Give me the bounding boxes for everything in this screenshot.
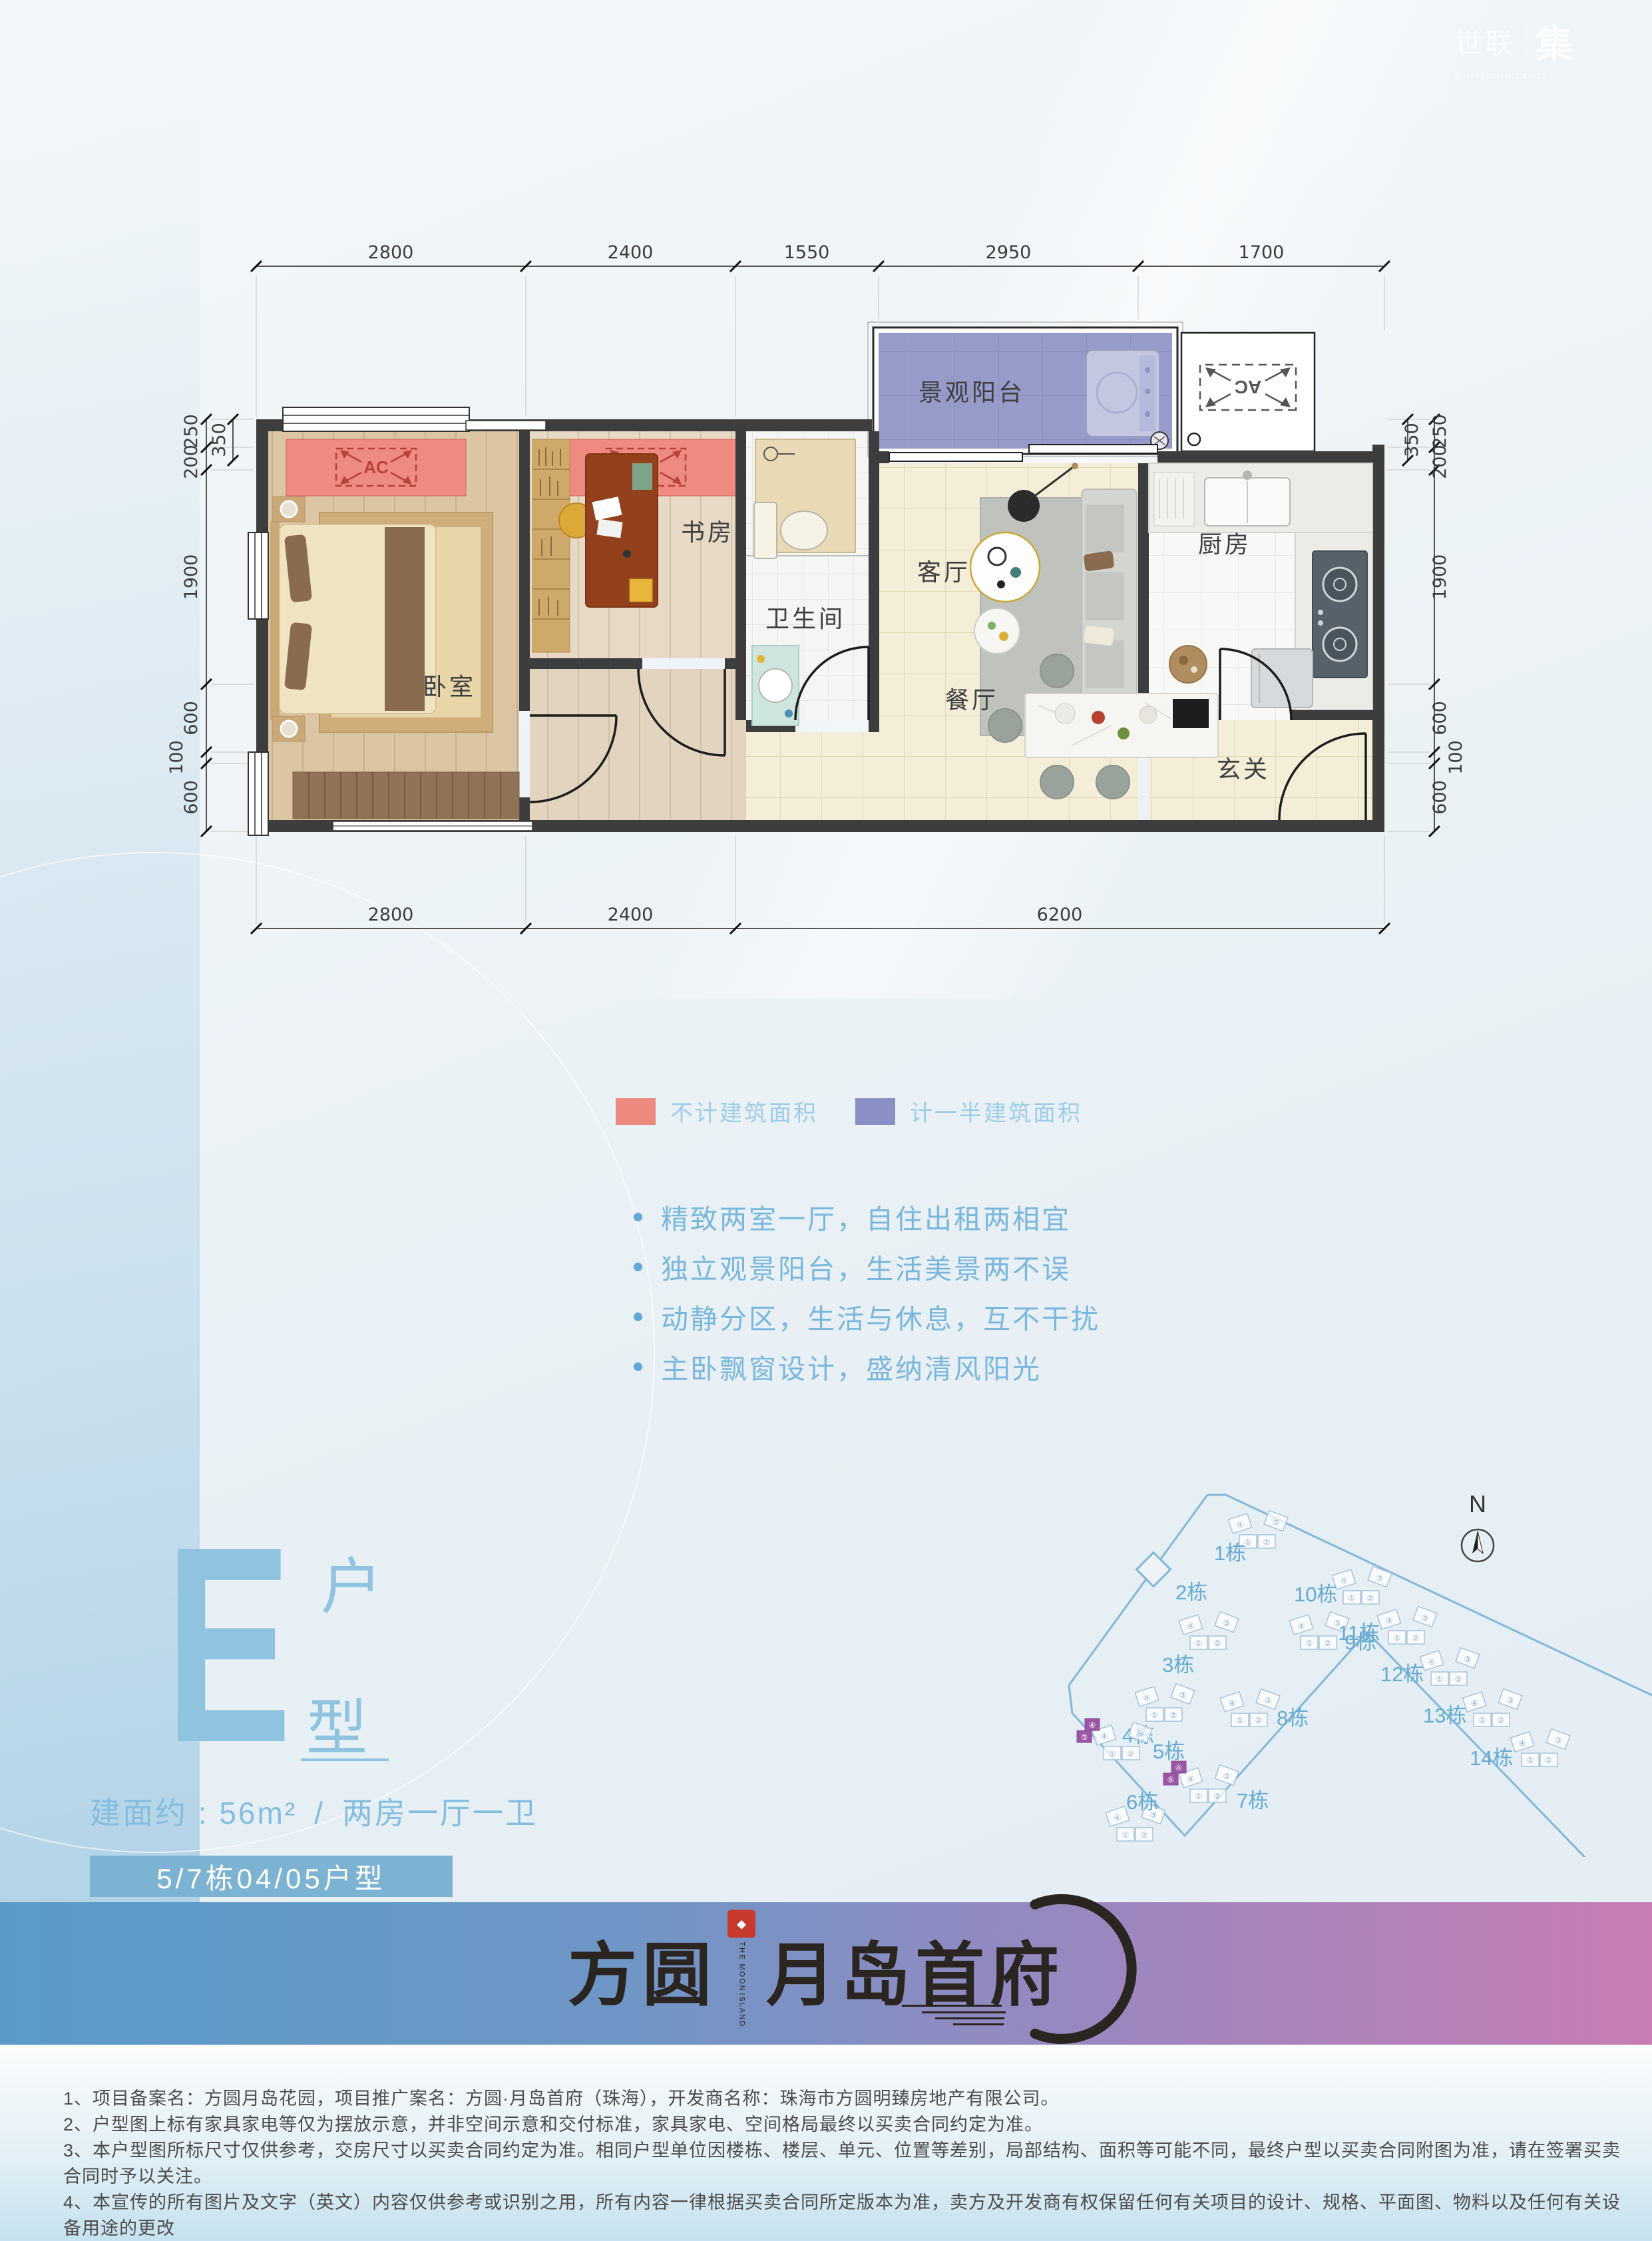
faucet-icon <box>1243 471 1252 480</box>
svg-text:②: ② <box>1170 1711 1177 1720</box>
svg-text:④: ④ <box>1101 1732 1108 1741</box>
unit-separator: / <box>314 1795 325 1831</box>
svg-text:②: ② <box>1128 1749 1135 1758</box>
desk-lamp <box>630 579 652 602</box>
svg-text:③: ③ <box>1223 1619 1231 1628</box>
label-kitchen: 厨房 <box>1198 530 1251 558</box>
svg-text:②: ② <box>1214 1792 1221 1801</box>
bullet-dot-icon <box>634 1362 642 1371</box>
site-building-8栋: ④③①②8栋 <box>1220 1689 1309 1730</box>
balcony <box>868 322 1183 457</box>
floorplan: 2800 2400 1550 2950 1700 2800 2400 6200 … <box>120 220 1584 972</box>
svg-text:④: ④ <box>1519 1738 1526 1748</box>
toilet-tank <box>754 503 777 558</box>
logo-speedline <box>922 2011 1006 2013</box>
bed-headboard <box>270 520 280 720</box>
svg-text:④: ④ <box>1114 1813 1122 1822</box>
site-building-label: 11栋 <box>1338 1621 1380 1645</box>
svg-text:②: ② <box>1498 1716 1505 1725</box>
svg-text:③: ③ <box>1376 1573 1384 1583</box>
logo-name-left: 方圆 <box>568 1918 717 2019</box>
dining-chair <box>1040 765 1074 799</box>
svg-text:④: ④ <box>1237 1520 1244 1529</box>
dim-top-1: 2800 <box>368 242 414 263</box>
watermark-suffix: 集 <box>1535 13 1573 69</box>
svg-text:②: ② <box>1325 1639 1332 1648</box>
logo-sub-line1: THE MOON <box>737 1941 745 1991</box>
svg-text:③: ③ <box>1555 1736 1562 1745</box>
fridge <box>1251 649 1313 708</box>
svg-text:⑤: ⑤ <box>1167 1775 1175 1784</box>
burner-1 <box>1323 568 1356 601</box>
unit-type-underline <box>301 1758 389 1761</box>
round-tray-table <box>1169 646 1207 683</box>
svg-text:②: ② <box>1412 1633 1420 1643</box>
label-balcony: 景观阳台 <box>919 379 1025 406</box>
feature-text: 精致两室一厅，自住出租两相宜 <box>661 1197 1071 1237</box>
svg-text:①: ① <box>1151 1711 1159 1720</box>
svg-text:②: ② <box>1141 1830 1148 1840</box>
dim-bottom-2: 2400 <box>608 905 654 925</box>
label-bathroom: 卫生间 <box>765 605 845 632</box>
site-building-11栋: ④③①②11栋 <box>1338 1607 1437 1645</box>
site-building-13栋: ④③①②13栋 <box>1423 1689 1522 1727</box>
dim-left-3: 1900 <box>181 554 202 600</box>
svg-text:④: ④ <box>1187 1774 1195 1784</box>
unit-area-text: 建面约 : 56m² <box>90 1789 297 1833</box>
svg-text:②: ② <box>1455 1675 1462 1684</box>
poster-canvas: 世联 集 worldunion.com <box>0 0 1652 2241</box>
coffee-table <box>970 532 1040 602</box>
dim-right-2: 200 <box>1430 445 1450 479</box>
footer: 1、项目备案名：方圆月岛花园，项目推广案名：方圆·月岛首府（珠海），开发商名称：… <box>0 2045 1652 2241</box>
site-building-label: 2栋 <box>1175 1581 1207 1604</box>
feature-text: 动静分区，生活与休息，互不干扰 <box>661 1297 1100 1336</box>
site-building-14栋: ④③①②14栋 <box>1470 1729 1570 1770</box>
unit-type-char-top: 户 <box>321 1537 382 1626</box>
sink-basin <box>759 669 792 702</box>
svg-text:③: ③ <box>1422 1613 1429 1623</box>
unit-badge: 5/7栋04/05户型 <box>90 1856 453 1897</box>
site-building-12栋: ④③①②12栋 <box>1380 1648 1480 1686</box>
bullet-dot-icon <box>634 1313 642 1321</box>
dining-chair <box>988 709 1022 742</box>
svg-text:①: ① <box>1195 1639 1203 1648</box>
ac-text-1: AC <box>363 457 389 477</box>
dim-right-4: 600 <box>1430 701 1450 735</box>
svg-text:①: ① <box>1195 1792 1203 1801</box>
brand-banner: 方圆 ◆ THE MOON ISLAND 月岛首府 <box>0 1902 1652 2045</box>
svg-text:①: ① <box>1122 1830 1130 1840</box>
svg-text:④: ④ <box>1089 1721 1096 1730</box>
watermark: 世联 集 worldunion.com <box>1454 13 1573 83</box>
site-building-label: 10栋 <box>1294 1583 1337 1606</box>
sofa-pillow-2 <box>1084 625 1115 646</box>
dim-left-2: 200 <box>181 445 202 479</box>
site-building-label: 8栋 <box>1277 1707 1309 1730</box>
svg-text:⑤: ⑤ <box>1081 1732 1088 1742</box>
site-building-label: 5栋 <box>1153 1740 1185 1763</box>
logo-speedline <box>953 2023 1004 2025</box>
svg-text:③: ③ <box>1273 1518 1280 1527</box>
site-building-label: 14栋 <box>1470 1746 1513 1770</box>
dim-bottom-3: 6200 <box>1037 905 1083 925</box>
feature-item: 独立观景阳台，生活美景两不误 <box>634 1247 1071 1287</box>
legend-swatch-red <box>616 1098 656 1125</box>
label-study: 书房 <box>681 518 734 546</box>
left-bay-window-1 <box>248 532 268 619</box>
unit-layout-text: 两房一厅一卫 <box>342 1789 538 1833</box>
site-building-label: 12栋 <box>1380 1663 1424 1686</box>
dim-top-2: 2400 <box>608 242 654 263</box>
site-building-1栋: ④③①②1栋 <box>1214 1511 1288 1565</box>
svg-text:①: ① <box>1306 1639 1313 1648</box>
svg-text:①: ① <box>1479 1716 1486 1725</box>
site-building-3栋: ④③①②3栋 <box>1162 1612 1239 1677</box>
logo-mid: ◆ THE MOON ISLAND <box>727 1910 755 2027</box>
brand-logo: 方圆 ◆ THE MOON ISLAND 月岛首府 <box>568 1910 1084 2027</box>
dim-top-4: 2950 <box>986 242 1032 263</box>
dim-right-inner: 350 <box>1402 423 1422 457</box>
svg-text:①: ① <box>1436 1675 1444 1684</box>
wardrobe <box>293 772 519 819</box>
svg-text:②: ② <box>1546 1756 1553 1765</box>
svg-text:④: ④ <box>1175 1763 1183 1772</box>
legend-item-half-area: 计一半建筑面积 <box>855 1095 1082 1127</box>
bed-runner <box>385 527 425 711</box>
legend-item-no-area: 不计建筑面积 <box>616 1095 818 1127</box>
svg-text:③: ③ <box>1507 1696 1514 1705</box>
disclaimer-line: 2、户型图上标有家具家电等仅为摆放示意，并非空间示意和交付标准，家具家电、空间格… <box>63 2112 1621 2138</box>
dim-right-5: 100 <box>1446 740 1466 775</box>
dim-left-4: 600 <box>181 701 202 735</box>
svg-text:②: ② <box>1214 1639 1221 1648</box>
svg-text:②: ② <box>1255 1716 1263 1725</box>
hallway-floor <box>530 669 746 820</box>
compass-north-label: N <box>1469 1490 1486 1518</box>
ac-text-outdoor: AC <box>1235 377 1261 397</box>
site-building-label: 13栋 <box>1423 1704 1466 1727</box>
feature-item: 动静分区，生活与休息，互不干扰 <box>634 1297 1100 1336</box>
left-bay-window-2 <box>248 752 268 835</box>
dim-left-5: 100 <box>166 740 187 775</box>
dim-right-1: 250 <box>1430 414 1450 449</box>
bullet-dot-icon <box>634 1213 642 1221</box>
disclaimer: 1、项目备案名：方圆月岛花园，项目推广案名：方圆·月岛首府（珠海），开发商名称：… <box>63 2086 1621 2241</box>
corridor-tile <box>746 732 879 820</box>
site-building-6栋: ④③①②6栋 <box>1106 1790 1165 1841</box>
dim-right-6: 600 <box>1430 780 1450 815</box>
legend-label: 计一半建筑面积 <box>910 1095 1082 1127</box>
svg-text:②: ② <box>1367 1593 1374 1603</box>
svg-text:①: ① <box>1394 1633 1401 1643</box>
dim-left-inner: 350 <box>209 423 230 457</box>
site-building-label: 3栋 <box>1162 1653 1194 1677</box>
site-building-label: 6栋 <box>1126 1790 1158 1814</box>
svg-text:①: ① <box>1527 1756 1534 1765</box>
label-living: 客厅 <box>917 558 970 586</box>
svg-text:③: ③ <box>1265 1696 1272 1705</box>
disclaimer-line: 1、项目备案名：方圆月岛花园，项目推广案名：方圆·月岛首府（珠海），开发商名称：… <box>63 2086 1621 2112</box>
svg-text:④: ④ <box>1229 1699 1236 1708</box>
compass: N <box>1462 1490 1494 1561</box>
label-bedroom: 卧室 <box>423 673 476 700</box>
logo-sub-line2: ISLAND <box>737 1993 745 2028</box>
svg-text:①: ① <box>1109 1749 1116 1758</box>
unit-type-letter: E <box>165 1506 292 1785</box>
dining-chair <box>1040 654 1074 688</box>
logo-diamond-icon: ◆ <box>727 1910 755 1937</box>
svg-text:④: ④ <box>1298 1621 1305 1631</box>
dim-left-1: 250 <box>181 414 202 449</box>
burner-2 <box>1323 628 1356 661</box>
svg-text:④: ④ <box>1187 1621 1195 1631</box>
svg-text:④: ④ <box>1386 1616 1393 1625</box>
feature-text: 独立观景阳台，生活美景两不误 <box>661 1247 1071 1287</box>
watermark-divider <box>1525 21 1526 61</box>
svg-text:③: ③ <box>1179 1691 1187 1700</box>
feature-item: 主卧飘窗设计，盛纳清风阳光 <box>634 1346 1042 1386</box>
site-building-7栋: ④③①②④⑤7栋 <box>1163 1761 1269 1812</box>
label-entry: 玄关 <box>1217 755 1270 783</box>
legend-swatch-purple <box>855 1098 895 1125</box>
svg-text:③: ③ <box>1464 1655 1472 1664</box>
dim-top-3: 1550 <box>784 242 830 263</box>
table-mat <box>1173 699 1209 728</box>
top-window <box>466 421 546 430</box>
site-building-label: 7栋 <box>1237 1789 1269 1812</box>
svg-text:④: ④ <box>1143 1693 1151 1703</box>
site-notch <box>1137 1553 1171 1587</box>
disclaimer-line: 4、本宣传的所有图片及文字（英文）内容仅供参考或识别之用，所有内容一律根据买卖合… <box>63 2190 1621 2241</box>
svg-text:④: ④ <box>1428 1657 1436 1667</box>
site-plan: N ④③①②1栋2栋④③①②3栋④③①②4栋④③①②④⑤5栋④③①②6栋④③①②… <box>1052 1418 1652 1857</box>
site-building-2栋: 2栋 <box>1175 1581 1207 1604</box>
svg-text:④: ④ <box>1471 1699 1478 1708</box>
dim-right-3: 1900 <box>1430 554 1450 600</box>
dish-rack <box>1154 473 1194 526</box>
feature-text: 主卧飘窗设计，盛纳清风阳光 <box>661 1346 1042 1386</box>
site-building-10栋: ④③①②10栋 <box>1294 1567 1392 1606</box>
unit-type-char-bottom: 型 <box>306 1679 367 1767</box>
svg-text:①: ① <box>1348 1593 1356 1603</box>
logo-speedline <box>902 2005 1002 2007</box>
dim-bottom-1: 2800 <box>368 905 414 925</box>
label-dining: 餐厅 <box>945 686 998 713</box>
feature-item: 精致两室一厅，自住出租两相宜 <box>634 1197 1071 1237</box>
svg-text:③: ③ <box>1137 1729 1144 1738</box>
desk-plant <box>632 463 652 490</box>
bedroom-bay-window <box>283 407 469 431</box>
side-table <box>974 608 1020 654</box>
logo-speedline <box>935 2017 1004 2019</box>
outdoor-ac-platform: AC <box>1181 333 1315 451</box>
watermark-brand: 世联 <box>1454 21 1516 62</box>
unit-area-line: 建面约 : 56m² / 两房一厅一卫 <box>90 1789 538 1833</box>
moon-crescent-icon <box>982 1886 1148 2052</box>
svg-text:②: ② <box>1263 1537 1271 1547</box>
bullet-dot-icon <box>634 1263 642 1271</box>
disclaimer-line: 3、本户型图所标尺寸仅供参考，交房尺寸以买卖合同约定为准。相同户型单位因楼栋、楼… <box>63 2138 1621 2190</box>
legend-label: 不计建筑面积 <box>670 1095 818 1127</box>
dining-chair <box>1096 765 1130 799</box>
svg-text:①: ① <box>1237 1716 1244 1725</box>
svg-text:④: ④ <box>1341 1576 1348 1585</box>
dim-left-6: 600 <box>181 780 202 815</box>
watermark-domain: worldunion.com <box>1454 71 1573 83</box>
svg-text:③: ③ <box>1223 1772 1231 1781</box>
site-building-label: 1栋 <box>1214 1541 1246 1565</box>
dim-top-5: 1700 <box>1239 242 1285 263</box>
toilet-bowl <box>781 511 827 550</box>
